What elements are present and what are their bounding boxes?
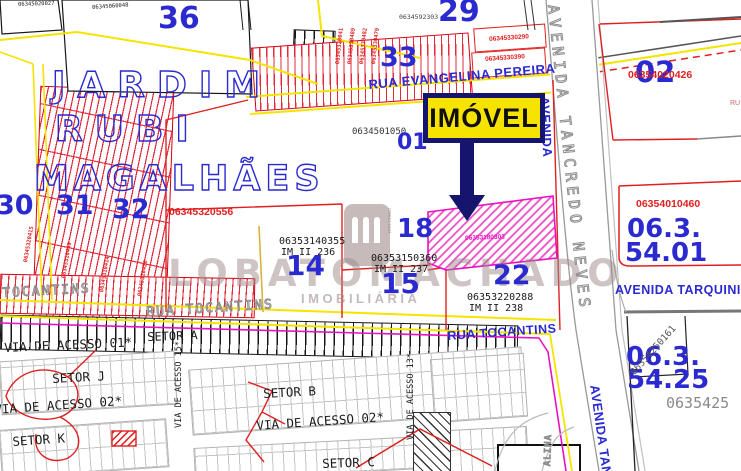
watermark-creci: CRECI-1044 xyxy=(387,208,392,234)
parcel-18-label: 18 xyxy=(397,216,433,242)
zone-5401-line2: 54.01 xyxy=(625,240,707,266)
parcel-code: 06345320556 xyxy=(169,207,233,218)
parcel-29-label: 29 xyxy=(438,0,480,27)
parcel-code: 06354020426 xyxy=(628,70,692,81)
parcel-15-label: 15 xyxy=(381,270,420,298)
parcel-31-label: 31 xyxy=(56,192,94,219)
district-title-line2: RUBI xyxy=(55,112,201,148)
imovel-callout: IMÓVEL xyxy=(423,93,545,143)
street-label-partial: RU xyxy=(730,100,740,107)
parcel-code: 06353140355 xyxy=(279,237,345,247)
street-label-partial-vert: ALINA xyxy=(544,434,554,466)
parcel-code: 0634592303 xyxy=(399,14,438,21)
street-label-tarquinio: AVENIDA TARQUINIO xyxy=(615,284,741,297)
parcel-code-partial: 0635425 xyxy=(666,396,729,411)
parcel-36-label: 36 xyxy=(158,4,200,34)
sector-j-label: SETOR J xyxy=(52,370,105,385)
parcel-code: 06353220288 xyxy=(467,293,533,303)
street-label-via15: VIA DE ACESSO 15* xyxy=(175,341,184,428)
parcel-14-label: 14 xyxy=(286,252,325,280)
cadastral-map: CRECI-1044 LOBATOMACHADO IMOBILIÁRIA 36 … xyxy=(0,0,741,471)
parcel-22-label: 22 xyxy=(493,262,531,289)
sector-b-label: SETOR B xyxy=(263,385,316,400)
parcel-30-label: 30 xyxy=(0,192,34,219)
parcel-code: 06353150360 xyxy=(371,254,437,264)
parcel-33-label: 33 xyxy=(380,44,418,71)
street-label-via13: VIA DE ACESSO 13* xyxy=(407,353,416,440)
parcel-32-label: 32 xyxy=(112,196,150,223)
pink-parcel-code: 06353180303 xyxy=(465,235,505,243)
imovel-callout-label: IMÓVEL xyxy=(429,103,539,134)
sector-a-label: SETOR A xyxy=(147,329,198,343)
parcel-im-ref: IM II 238 xyxy=(469,304,523,314)
district-title-line1: JARDIM xyxy=(52,68,272,104)
sector-c-label: SETOR C xyxy=(322,456,375,470)
parcel-code: 06354010460 xyxy=(636,199,700,210)
